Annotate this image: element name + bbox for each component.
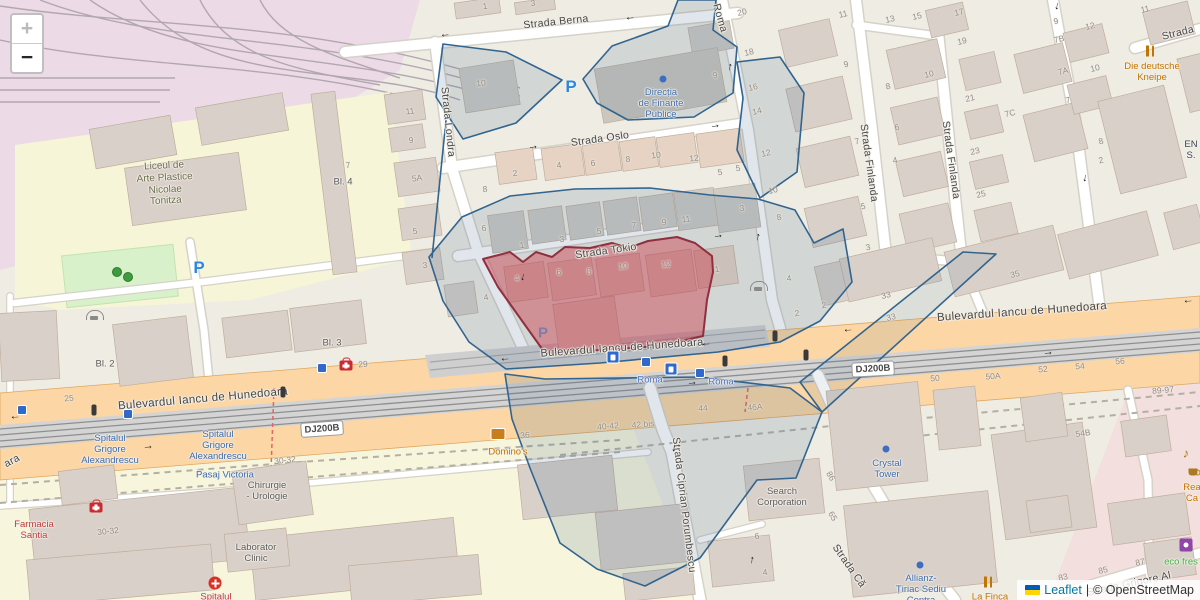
oneway-arrow-icon: → (709, 118, 722, 131)
label-layer: Strada BernaStrada OsloStrada TokioStrad… (0, 0, 1200, 600)
house-number: 8 (776, 212, 783, 223)
house-number: 54 (1075, 361, 1085, 372)
oneway-arrow-icon: ← (1182, 294, 1194, 307)
house-number: 10 (1089, 62, 1101, 74)
dominos-label: Domino's (488, 446, 527, 457)
street-label: Strada (1161, 23, 1196, 43)
hospital-label-2: SpitalulGrigoreAlexandrescu (189, 429, 247, 463)
pharmacy-kit-icon (340, 358, 353, 371)
house-number: 46A (747, 401, 763, 412)
house-number: 9 (661, 217, 667, 228)
house-number: 17 (953, 6, 964, 18)
house-number: 5A (411, 172, 423, 183)
house-number: 50 (930, 373, 940, 384)
bl4-label: Bl. 4 (333, 176, 352, 187)
parking-faded-icon: P (538, 325, 548, 342)
ukraine-flag-icon (1025, 585, 1040, 595)
house-number: 2 (1097, 155, 1104, 166)
roma-tram-stop-label-2: Roma (708, 376, 733, 387)
street-label: Roma (710, 2, 730, 33)
attribution-separator: | (1086, 583, 1089, 597)
house-number: 29 (358, 359, 368, 370)
cup-icon (1189, 469, 1198, 476)
street-label: Bulevardul Iancu de Hunedoara (937, 300, 1108, 324)
house-number: 10 (923, 68, 934, 80)
eco-fresh-label: eco fres (1164, 556, 1198, 567)
house-number: 5 (735, 163, 741, 174)
house-number: 86 (824, 469, 837, 482)
tram-stop-icon (607, 351, 620, 364)
house-number: 11 (405, 105, 415, 116)
house-number: 6 (590, 158, 596, 169)
street-label: Strada Ciprian Porumbescu (670, 437, 699, 574)
house-number: 7A (1057, 65, 1070, 77)
house-number: 42 bis (631, 418, 654, 430)
traffic-light-icon (281, 387, 286, 398)
house-number: 50A (985, 370, 1001, 381)
zoom-out-button[interactable]: − (12, 44, 42, 72)
parking-icon: P (565, 77, 576, 97)
roma-tram-stop-label-1: Roma (637, 374, 662, 385)
zoom-in-button[interactable]: + (12, 15, 42, 44)
house-number: 12 (689, 152, 700, 163)
house-number: 6 (481, 223, 487, 234)
house-number: 33 (885, 311, 896, 323)
house-number: 19 (956, 35, 967, 47)
house-number: 7 (345, 160, 351, 171)
bl3-label: Bl. 3 (322, 337, 341, 348)
tram-square-icon (317, 363, 327, 373)
finante-publice-label: Direcțiade FinanțePublice (639, 87, 684, 121)
house-number: 18 (743, 46, 754, 58)
house-number: 1 (714, 264, 720, 275)
house-number: 8 (1097, 136, 1104, 147)
house-number: 16 (747, 81, 758, 93)
tram-stop-icon (665, 363, 678, 376)
traffic-light-icon (92, 405, 97, 416)
tram-square-icon (695, 368, 705, 378)
house-number: 9 (1052, 16, 1059, 27)
street-label: Bulevardul Iancu de Hunedoara (118, 386, 289, 413)
oneway-arrow-icon: → (1042, 346, 1054, 359)
house-number: 85 (1097, 564, 1108, 576)
house-number: 12 (760, 147, 771, 159)
house-number: 6 (894, 122, 901, 133)
purple-square-icon (1180, 539, 1193, 552)
house-number: 30-32 (274, 454, 297, 466)
street-label: Bulevardul Iancu de Hunedoara (540, 336, 704, 359)
house-number: 25 (975, 188, 986, 200)
house-number: 12 (661, 258, 672, 269)
house-number: 65 (826, 509, 839, 522)
house-number: 12 (1084, 20, 1096, 32)
parking-icon: P (193, 258, 204, 278)
tram-square-icon (17, 405, 27, 415)
en-label: ENS. (1184, 139, 1197, 161)
house-number: 23 (969, 145, 980, 157)
tram-square-icon (641, 357, 651, 367)
house-number: 25 (64, 393, 74, 404)
house-number: 6 (556, 267, 562, 278)
oneway-arrow-icon: → (142, 440, 154, 453)
hospital-label-1: SpitalulGrigoreAlexandrescu (81, 433, 139, 467)
house-number: 9 (408, 135, 414, 146)
street-label: Strada Londra (438, 86, 457, 157)
street-label: Strada Că (830, 542, 868, 590)
house-number: 54B (1075, 427, 1091, 439)
house-number: 35 (1009, 268, 1020, 280)
bl2-label: Bl. 2 (95, 358, 114, 369)
car-shelter-icon (750, 281, 768, 291)
tram-square-icon (123, 409, 133, 419)
house-number: 3 (739, 203, 745, 214)
osm-link[interactable]: © OpenStreetMap (1093, 583, 1194, 597)
street-label: Strada Finlanda (858, 123, 881, 203)
oneway-arrow-icon: ↑ (726, 61, 734, 74)
oneway-arrow-icon: ← (624, 10, 636, 23)
house-number: 15 (911, 10, 922, 22)
search-corporation-label: SearchCorporation (757, 486, 807, 508)
house-number: 1 (482, 1, 488, 12)
tree-icon (123, 272, 133, 282)
allianz-label: Allianz-Țiriac SediuCentra (896, 573, 946, 600)
house-number: 36 (520, 430, 530, 441)
traffic-light-icon (804, 350, 809, 361)
road-ref-badge: DJ200B (851, 360, 895, 377)
house-number: 3 (559, 234, 565, 245)
traffic-light-icon (723, 356, 728, 367)
oneway-arrow-icon: ← (439, 27, 451, 40)
house-number: 2 (794, 308, 800, 319)
house-number: 9 (712, 70, 718, 81)
house-number: 5 (717, 167, 723, 178)
fork-knife-icon (984, 577, 992, 588)
oneway-arrow-icon: ↑ (748, 554, 755, 567)
house-number: 8 (586, 266, 592, 277)
house-number: 7C (1004, 107, 1017, 119)
school-label: Liceul deArte PlasticeNicolaeTonitza (136, 159, 195, 209)
laborator-clinic-label: LaboratorClinic (236, 542, 277, 564)
poi-dot-icon (917, 562, 924, 569)
house-number: 5 (412, 226, 418, 237)
house-number: 5 (596, 226, 602, 237)
house-number: 9 (843, 59, 850, 70)
house-number: 5 (860, 201, 867, 212)
oneway-arrow-icon: ↓ (1081, 172, 1088, 185)
street-label: Strada Oslo (570, 129, 630, 149)
hospital-cross-icon (209, 577, 222, 590)
rea-ca-label: ReaCa (1183, 482, 1200, 504)
oneway-arrow-icon: → (712, 228, 725, 241)
poi-dot-icon (883, 446, 890, 453)
house-number: 11 (838, 8, 849, 20)
car-shelter-icon (86, 310, 104, 320)
house-number: 33 (880, 289, 891, 301)
house-number: 7 (631, 220, 637, 231)
house-number: 10 (618, 260, 629, 271)
fork-knife-icon (1146, 46, 1154, 57)
house-number: 8 (625, 154, 631, 165)
oneway-arrow-icon: ↑ (754, 231, 762, 244)
street-label: Strada Tokio (575, 241, 638, 261)
spitalul-label: Spitalul (200, 591, 231, 600)
zoom-control: + − (10, 13, 44, 74)
pharmacy-kit-icon (90, 500, 103, 513)
chirurgie-urologie-label: Chirurgie- Urologie (246, 480, 287, 502)
house-number: 30-32 (97, 525, 120, 537)
house-number: 8 (885, 81, 892, 92)
house-number: 4 (892, 155, 899, 166)
house-number: 11 (1140, 3, 1151, 15)
house-number: 20 (736, 6, 747, 18)
street-label: Strada Berna (523, 13, 589, 32)
road-ref-badge: DJ200B (300, 420, 344, 438)
house-number: 11 (681, 213, 691, 224)
house-number: 1 (519, 240, 525, 251)
house-number: 44 (698, 403, 708, 414)
traffic-light-icon (773, 331, 778, 342)
attribution-bar: Leaflet | © OpenStreetMap (1017, 580, 1200, 600)
crystal-tower-label: CrystalTower (872, 458, 902, 480)
house-number: 2 (821, 300, 827, 311)
la-finca-label: La Finca (972, 591, 1008, 600)
house-number: 10 (651, 149, 662, 160)
house-number: 3 (530, 0, 536, 8)
house-number: 40-42 (597, 420, 620, 432)
map-viewport[interactable]: Strada BernaStrada OsloStrada TokioStrad… (0, 0, 1200, 600)
oneway-arrow-icon: → (527, 139, 540, 152)
oneway-arrow-icon: ← (700, 337, 712, 350)
house-number: 6 (754, 531, 760, 542)
pasaj-victoria-label: Pasaj Victoria (196, 469, 254, 480)
house-number: 4 (556, 160, 562, 171)
oneway-arrow-icon: ↓ (519, 271, 527, 284)
house-number: 52 (1038, 364, 1048, 375)
street-label: Strada Finlanda (940, 120, 963, 200)
oneway-arrow-icon: ← (499, 352, 511, 365)
house-number: 2 (512, 168, 518, 179)
poi-dot-icon (660, 76, 667, 83)
house-number: 4 (762, 567, 768, 578)
house-number: 13 (884, 13, 895, 25)
oneway-arrow-icon: ↓ (1053, 0, 1060, 12)
house-number: 56 (1115, 356, 1125, 367)
house-number: 4 (483, 292, 489, 303)
music-note-icon: ♪ (1183, 446, 1190, 461)
dominos-icon (491, 428, 506, 440)
house-number: 8 (482, 184, 488, 195)
house-number: 87 (1134, 556, 1145, 568)
house-number: 10 (767, 184, 778, 196)
tree-icon (112, 267, 122, 277)
house-number: 21 (964, 92, 975, 104)
street-label: ara (2, 452, 22, 470)
farmacia-santia-label: FarmaciaSantia (14, 519, 54, 541)
house-number: 14 (751, 105, 762, 117)
oneway-arrow-icon: ← (842, 323, 854, 336)
leaflet-link[interactable]: Leaflet (1044, 583, 1082, 597)
house-number: 89-97 (1152, 384, 1175, 396)
house-number: 7 (1064, 95, 1071, 106)
house-number: 4 (786, 273, 792, 284)
house-number: 3 (422, 260, 428, 271)
deutsche-kneipe-label: Die deutscheKneipe (1124, 61, 1179, 83)
house-number: 3 (865, 242, 872, 253)
house-number: 7B (1053, 33, 1066, 45)
house-number: 10 (476, 77, 487, 88)
